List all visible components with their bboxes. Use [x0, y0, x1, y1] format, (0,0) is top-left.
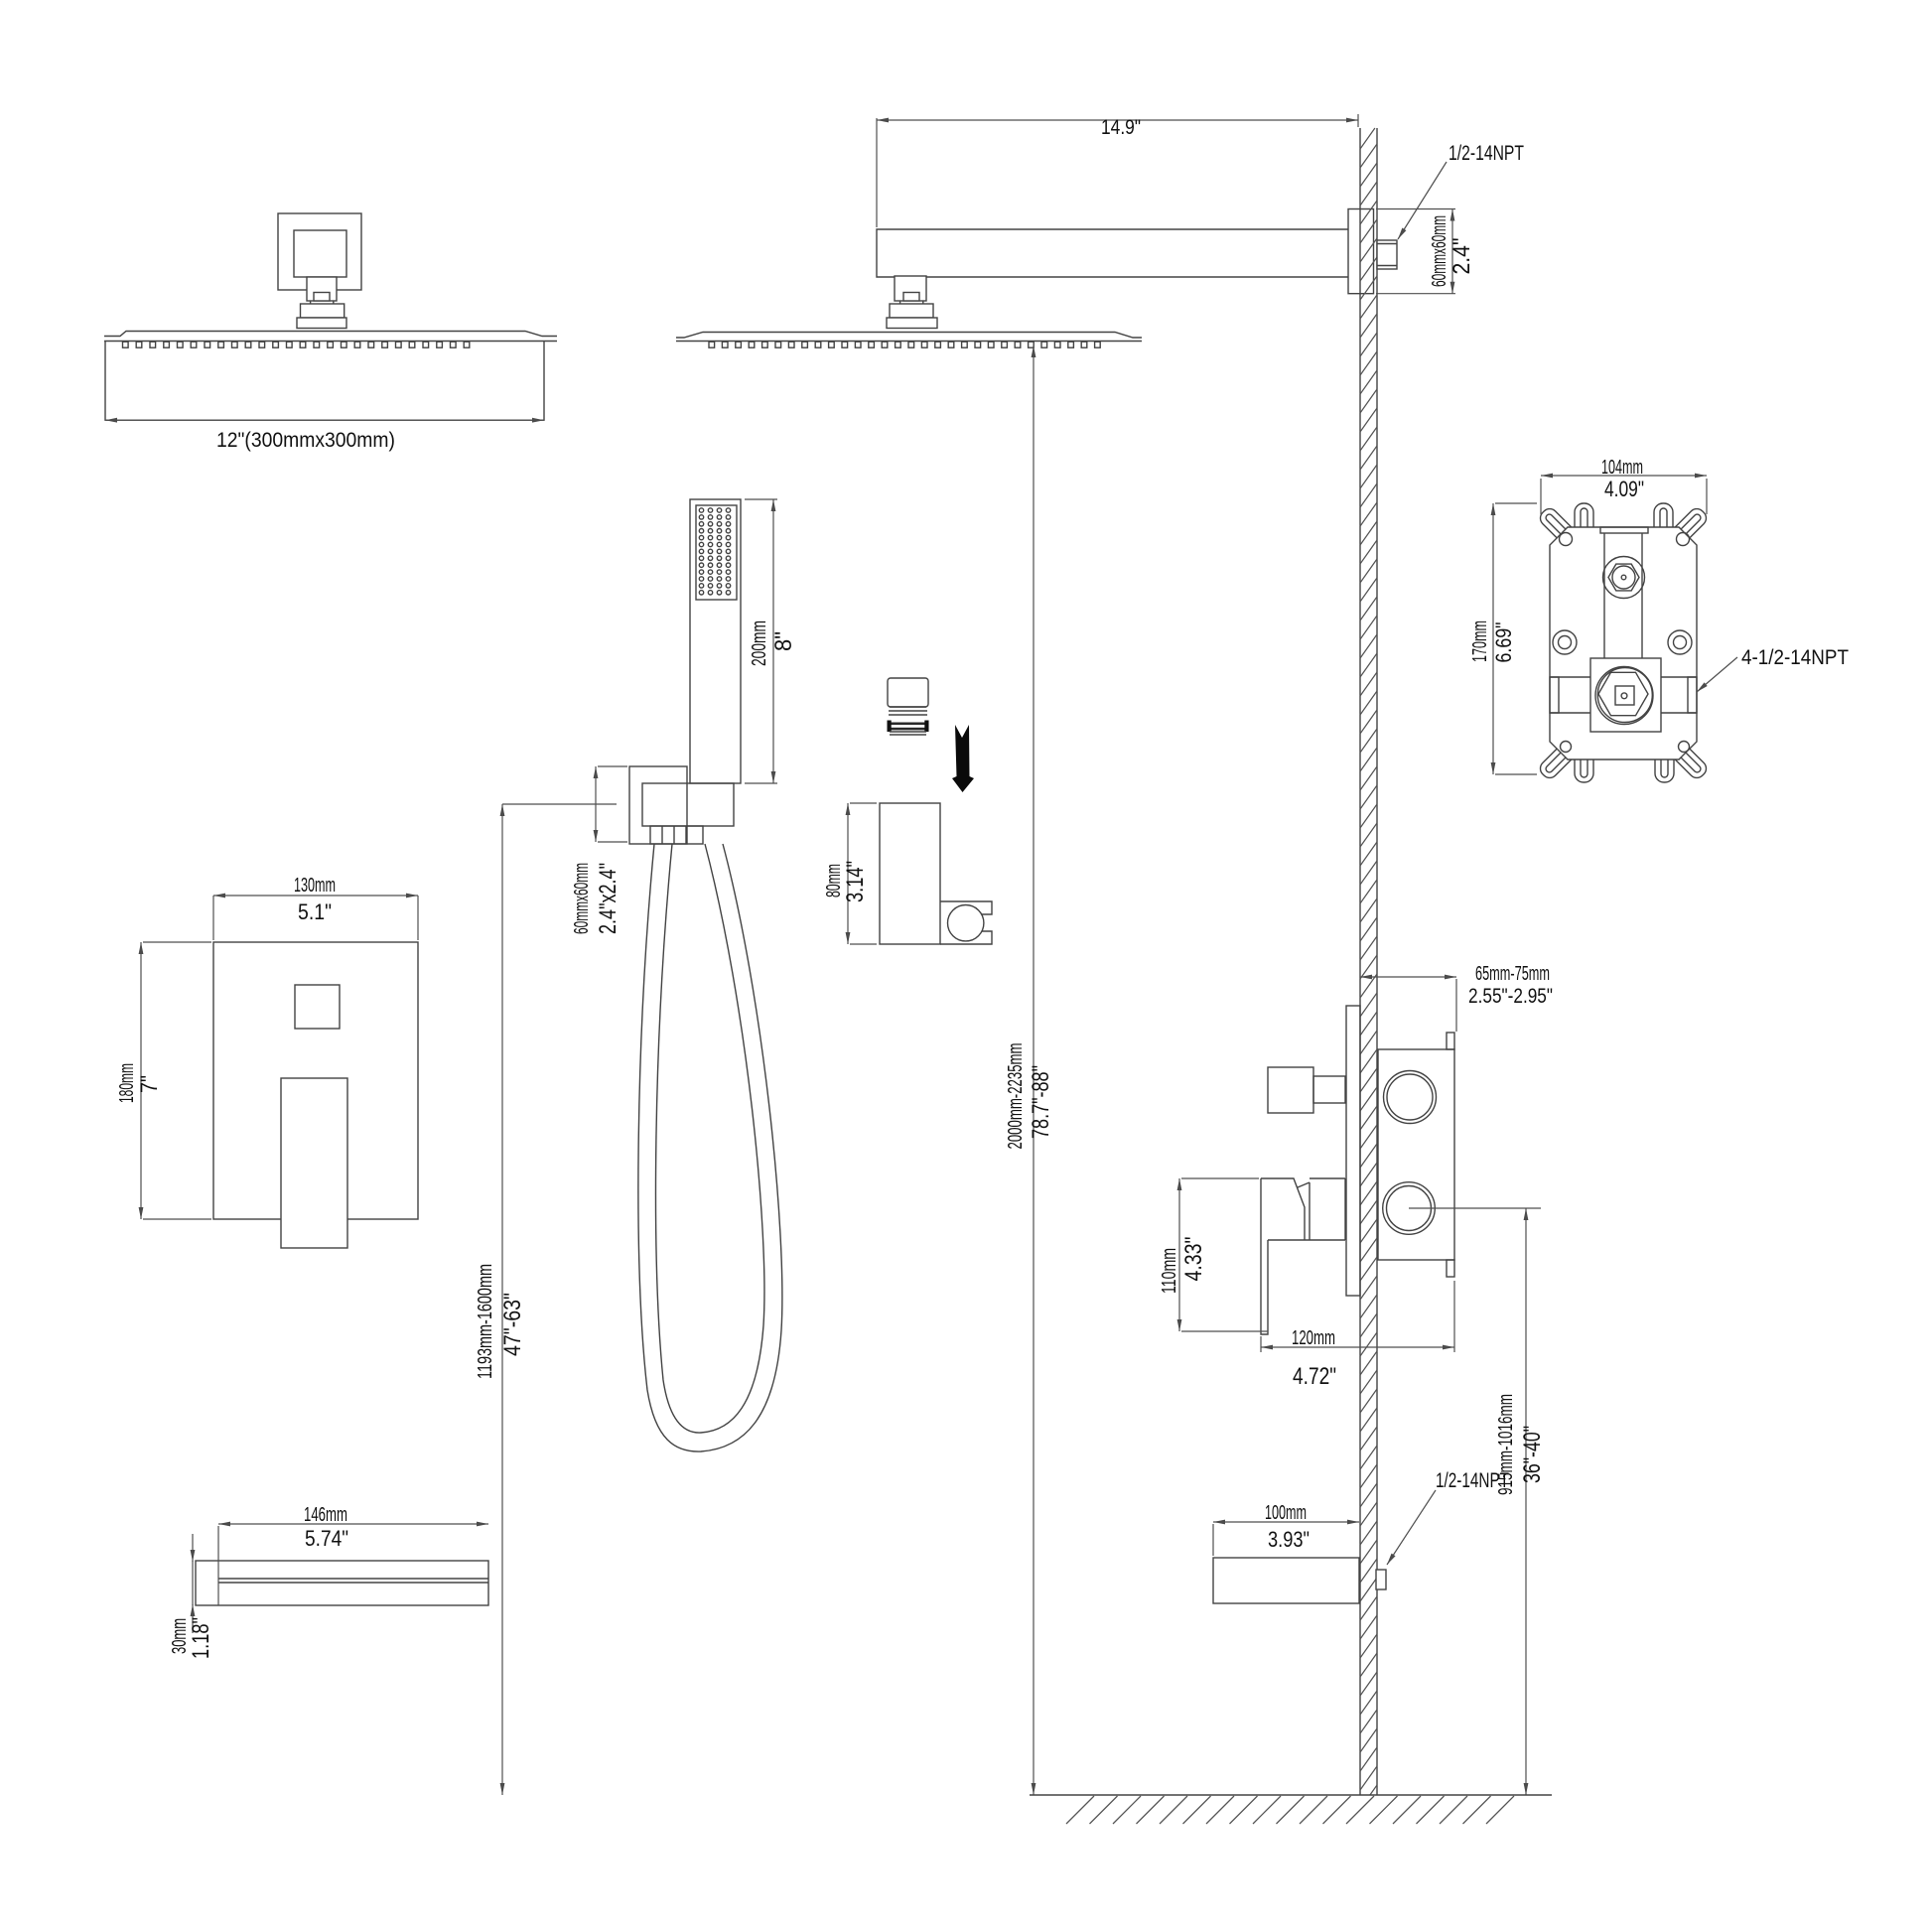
svg-text:47"-63": 47"-63"	[499, 1293, 526, 1356]
svg-text:12"(300mmx300mm): 12"(300mmx300mm)	[216, 429, 395, 452]
svg-text:1/2-14NPT: 1/2-14NPT	[1449, 142, 1524, 165]
svg-text:915mm-1016mm: 915mm-1016mm	[1495, 1394, 1517, 1495]
svg-text:104mm: 104mm	[1601, 457, 1643, 479]
svg-text:200mm: 200mm	[749, 621, 770, 666]
svg-text:2.55"-2.95": 2.55"-2.95"	[1468, 985, 1553, 1008]
svg-text:130mm: 130mm	[294, 875, 336, 897]
svg-text:170mm: 170mm	[1469, 621, 1491, 662]
svg-text:1193mm-1600mm: 1193mm-1600mm	[475, 1264, 496, 1379]
svg-text:8": 8"	[770, 631, 797, 651]
svg-text:60mmx60mm: 60mmx60mm	[571, 863, 593, 934]
svg-text:14.9": 14.9"	[1101, 116, 1141, 139]
svg-text:110mm: 110mm	[1159, 1248, 1180, 1294]
svg-text:4.09": 4.09"	[1604, 477, 1644, 501]
svg-text:2000mm-2235mm: 2000mm-2235mm	[1005, 1043, 1027, 1150]
svg-text:4.72": 4.72"	[1293, 1363, 1336, 1390]
svg-text:2.4"x2.4": 2.4"x2.4"	[595, 863, 621, 934]
svg-text:7": 7"	[136, 1075, 163, 1093]
svg-text:146mm: 146mm	[304, 1504, 347, 1526]
svg-text:4.33": 4.33"	[1180, 1237, 1207, 1282]
svg-text:100mm: 100mm	[1265, 1502, 1307, 1524]
svg-text:4-1/2-14NPT: 4-1/2-14NPT	[1741, 646, 1849, 669]
svg-text:36"-40": 36"-40"	[1519, 1426, 1546, 1483]
svg-text:60mmx60mm: 60mmx60mm	[1429, 215, 1450, 287]
svg-text:2.4": 2.4"	[1449, 238, 1475, 275]
svg-text:78.7"-88": 78.7"-88"	[1028, 1065, 1054, 1139]
svg-text:3.14": 3.14"	[842, 861, 869, 902]
svg-text:120mm: 120mm	[1292, 1327, 1335, 1349]
svg-text:3.93": 3.93"	[1268, 1527, 1310, 1552]
svg-text:180mm: 180mm	[116, 1063, 138, 1103]
svg-text:6.69": 6.69"	[1491, 622, 1516, 663]
svg-text:5.1": 5.1"	[298, 899, 332, 924]
svg-text:1.18": 1.18"	[188, 1617, 214, 1659]
svg-text:65mm-75mm: 65mm-75mm	[1475, 963, 1550, 985]
svg-text:5.74": 5.74"	[305, 1526, 348, 1551]
